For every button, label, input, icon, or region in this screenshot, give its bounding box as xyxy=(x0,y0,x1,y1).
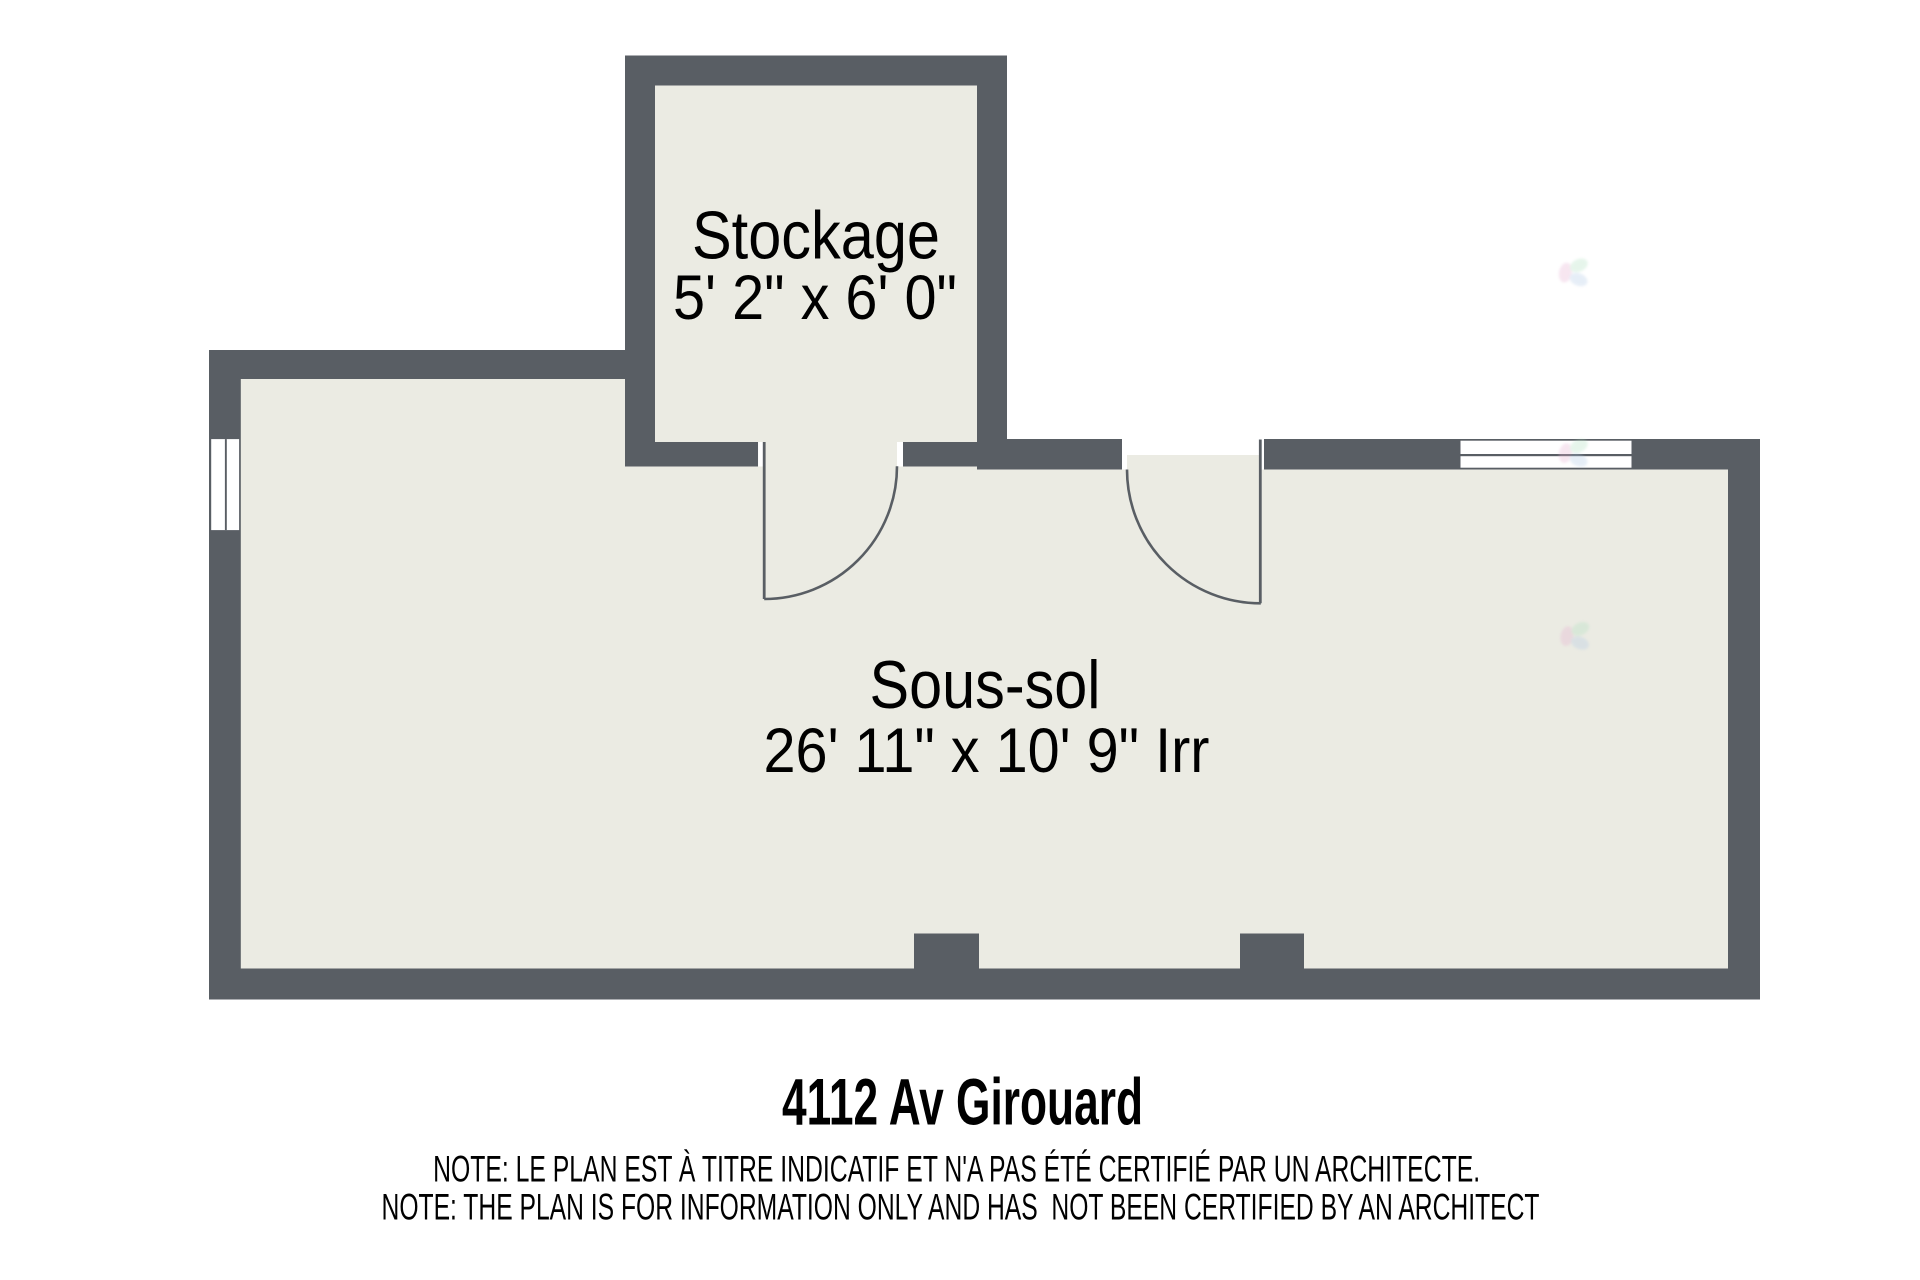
svg-text:4112 Av Girouard: 4112 Av Girouard xyxy=(782,1065,1143,1139)
svg-text:NOTE: LE PLAN EST À TITRE INDI: NOTE: LE PLAN EST À TITRE INDICATIF ET N… xyxy=(433,1149,1480,1190)
svg-text:5' 2" x 6' 0": 5' 2" x 6' 0" xyxy=(673,263,957,333)
svg-text:Sous-sol: Sous-sol xyxy=(870,647,1101,723)
svg-text:26' 11" x 10' 9" Irr: 26' 11" x 10' 9" Irr xyxy=(764,716,1210,786)
svg-text:NOTE: THE PLAN IS FOR INFORMAT: NOTE: THE PLAN IS FOR INFORMATION ONLY A… xyxy=(382,1186,1540,1227)
